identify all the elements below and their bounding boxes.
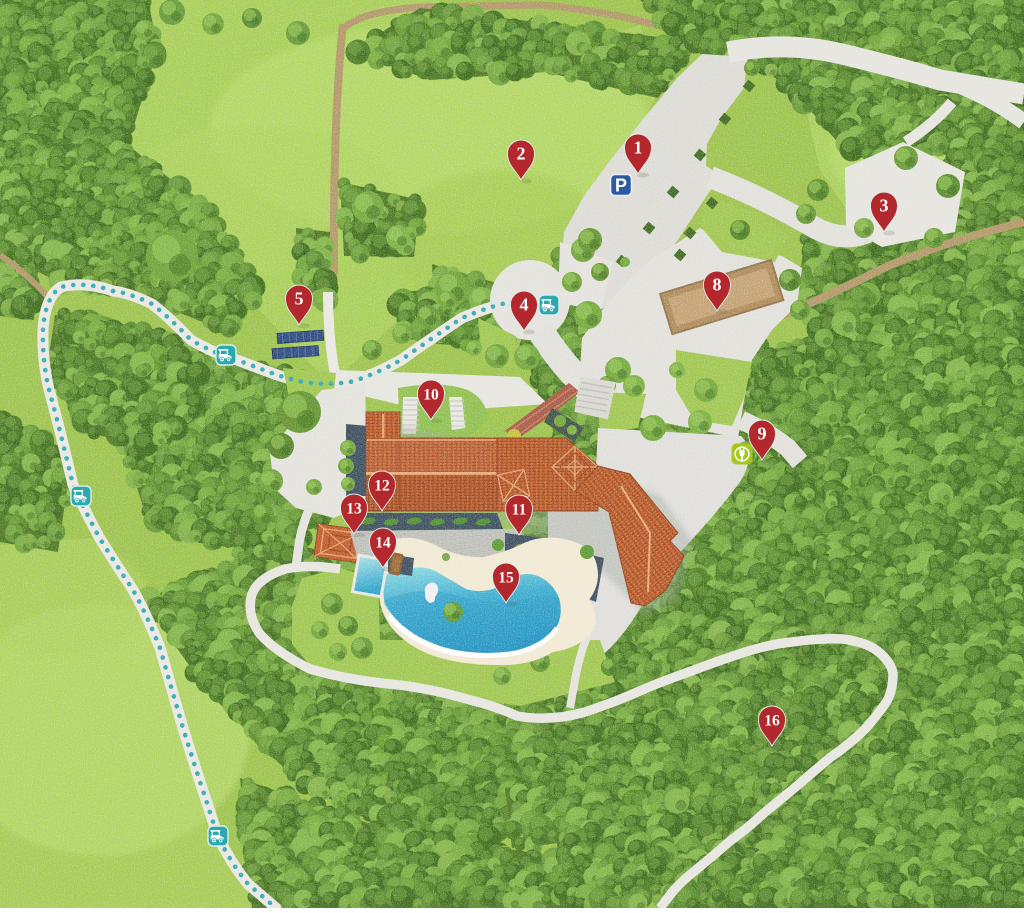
svg-text:P: P <box>615 176 627 196</box>
svg-text:2: 2 <box>517 144 526 164</box>
svg-text:10: 10 <box>423 387 439 404</box>
svg-text:15: 15 <box>498 570 514 587</box>
svg-text:11: 11 <box>512 502 527 519</box>
svg-text:12: 12 <box>374 478 390 495</box>
svg-text:14: 14 <box>375 535 391 552</box>
svg-text:5: 5 <box>295 289 304 309</box>
svg-text:16: 16 <box>764 713 780 730</box>
svg-text:8: 8 <box>713 275 722 295</box>
svg-text:3: 3 <box>880 196 889 216</box>
svg-text:4: 4 <box>520 295 529 315</box>
svg-text:13: 13 <box>346 501 362 518</box>
svg-text:1: 1 <box>634 138 643 158</box>
svg-text:9: 9 <box>758 424 767 444</box>
